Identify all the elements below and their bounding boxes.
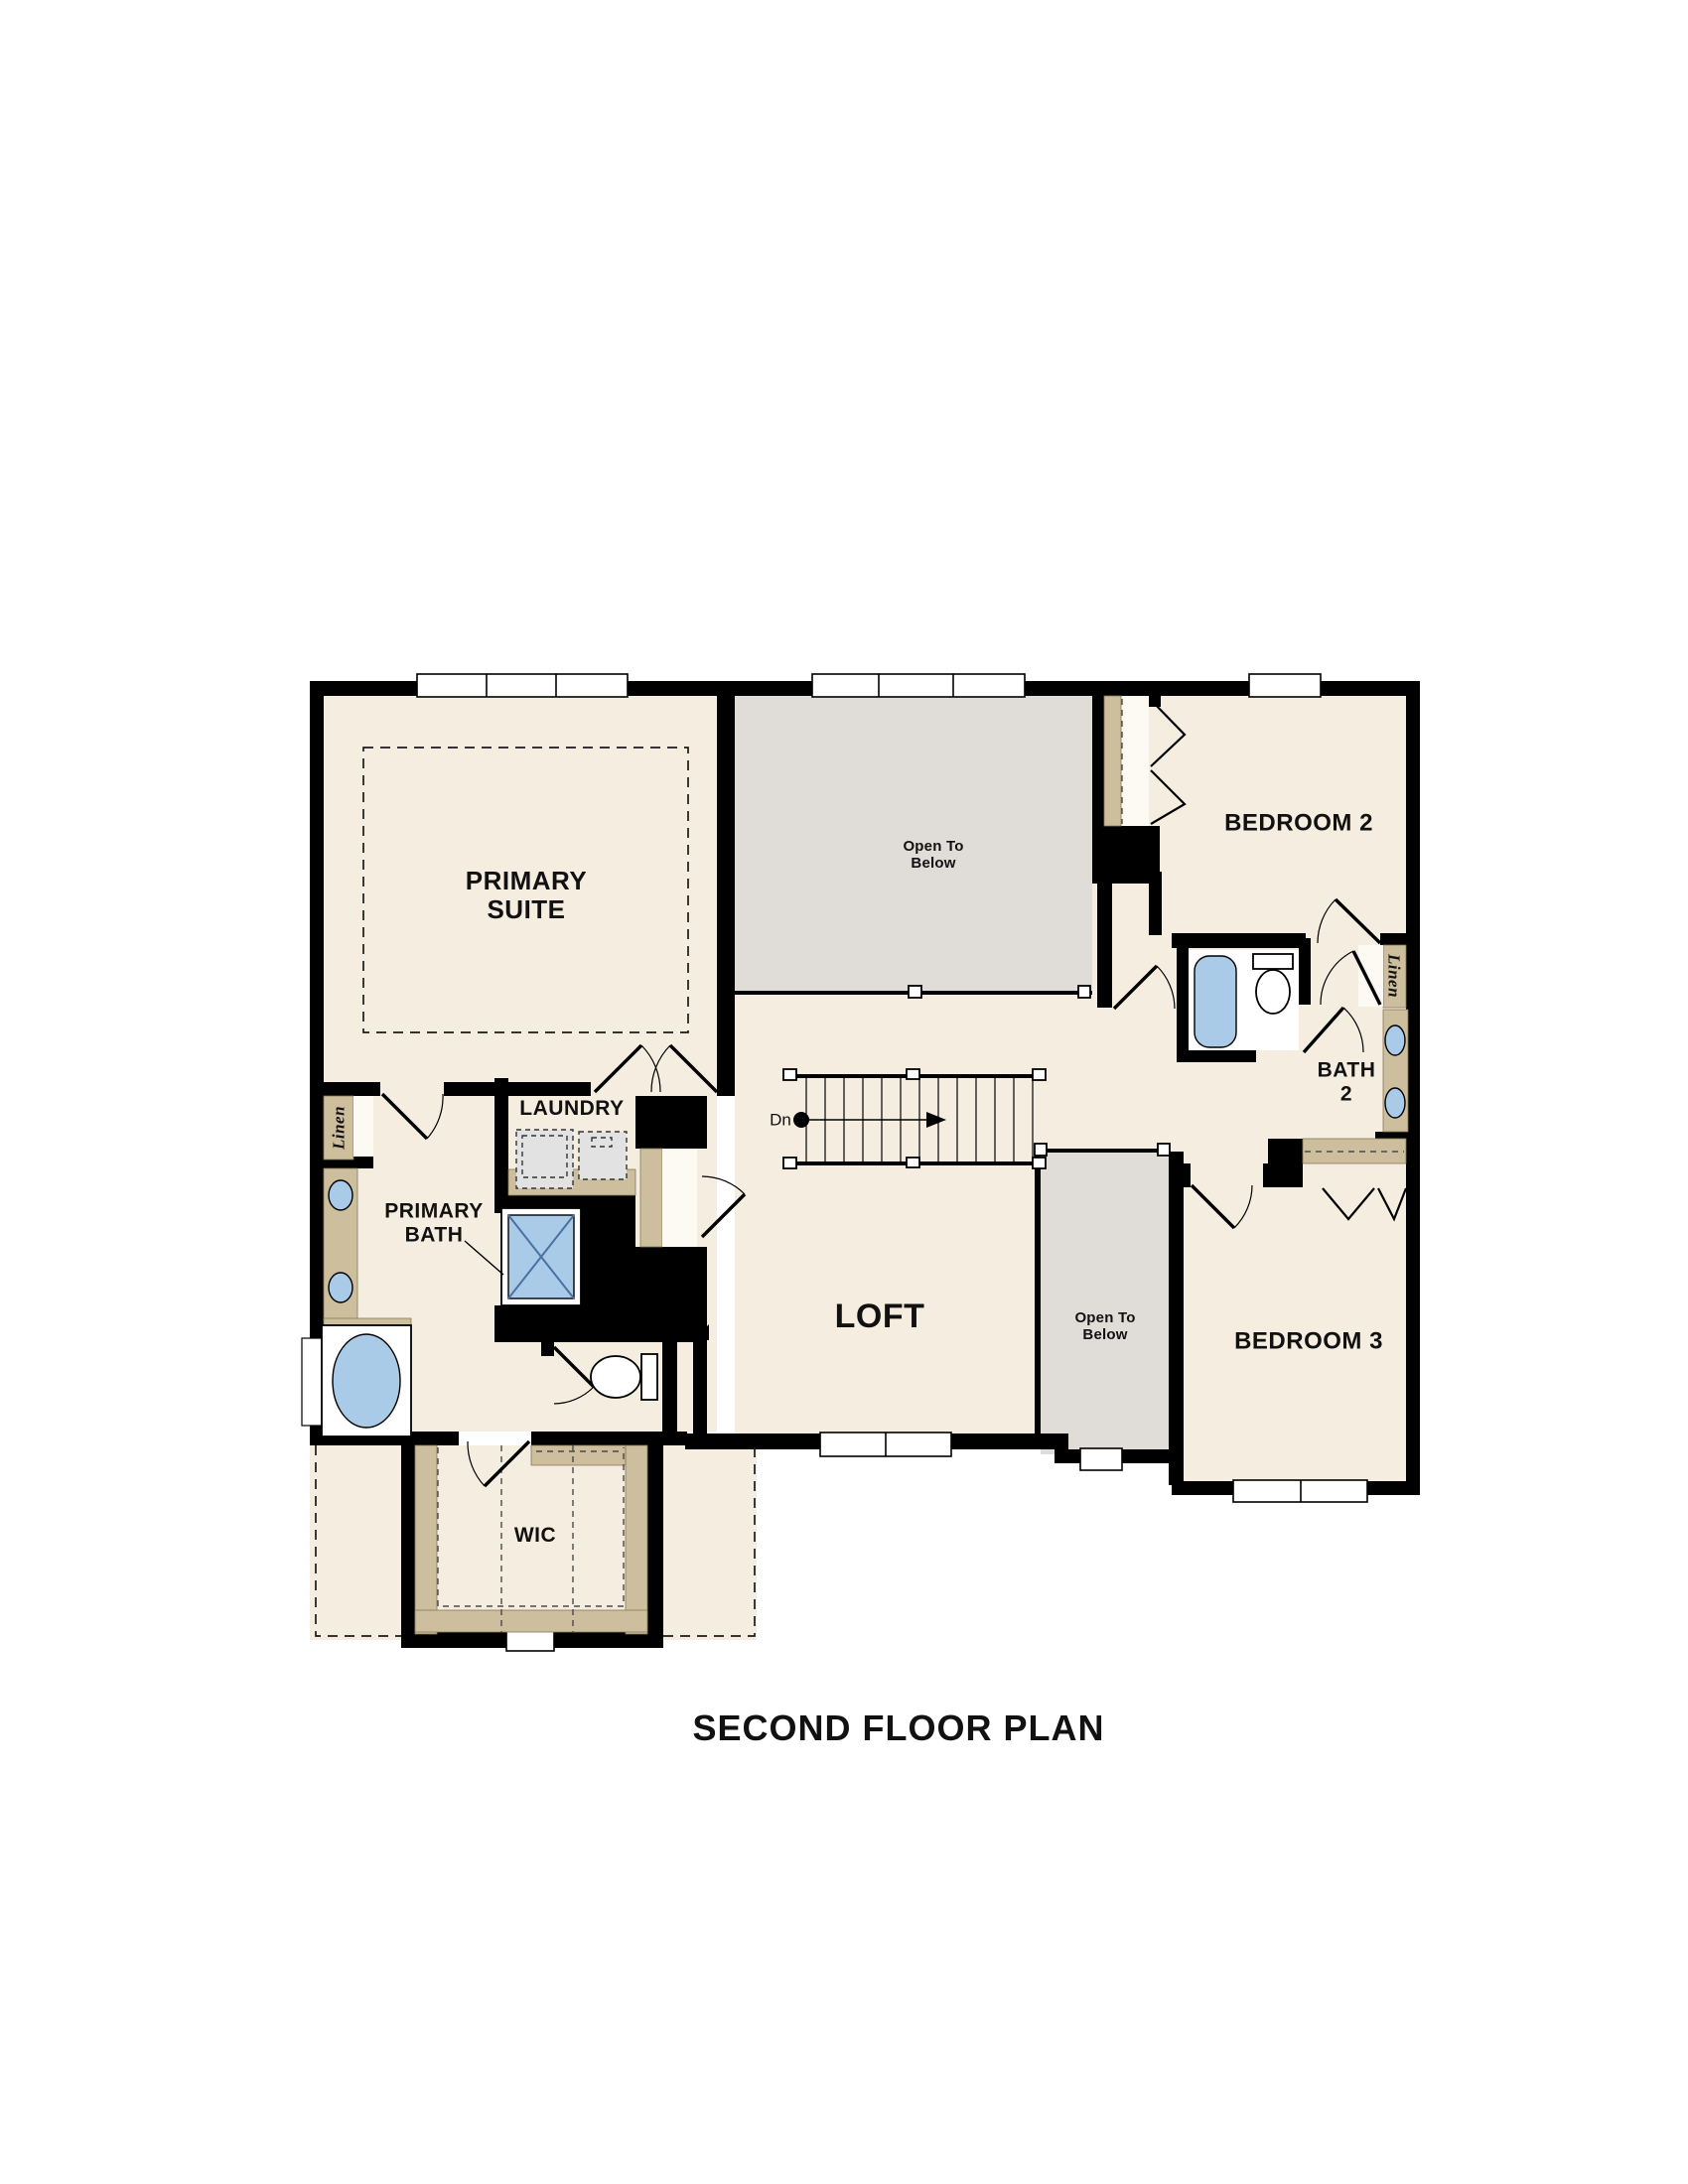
window-bedroom-2 [1249, 674, 1321, 697]
window-open-below-lower [1080, 1448, 1122, 1470]
label-primary-suite: PRIMARY SUITE [437, 867, 616, 924]
open-to-below-lower [1041, 1152, 1169, 1454]
bedroom2-closet-shelf [1104, 696, 1121, 826]
label-loft: LOFT [780, 1297, 979, 1335]
floor-plan-drawing [0, 0, 1688, 2184]
bath2-fixtures [1189, 950, 1299, 1050]
laundry-appliances [516, 1130, 627, 1188]
primary-shower [501, 1208, 581, 1305]
label-open-to-below-upper: Open To Below [903, 839, 964, 873]
window-open-below [812, 674, 1025, 697]
label-open-to-below-lower: Open To Below [1074, 1310, 1136, 1344]
label-bedroom-3: BEDROOM 3 [1190, 1329, 1428, 1356]
window-loft [820, 1433, 951, 1456]
floor-plan-page: PRIMARY SUITE Open To Below BEDROOM 2 BA… [0, 0, 1688, 2184]
window-bedroom-3 [1233, 1480, 1367, 1502]
label-linen-left: Linen [329, 1106, 348, 1150]
label-stairs-dn: Dn [761, 1110, 800, 1129]
window-wic [506, 1631, 554, 1651]
water-closet-toilet [591, 1354, 657, 1400]
label-wic: WIC [486, 1524, 585, 1548]
label-bath-2: BATH 2 [1315, 1058, 1378, 1105]
plan-title: SECOND FLOOR PLAN [692, 1707, 1104, 1749]
window-primary-suite [417, 674, 628, 697]
label-bedroom-2: BEDROOM 2 [1185, 811, 1413, 838]
hall-closet-shelf [640, 1149, 662, 1247]
label-primary-bath: PRIMARY BATH [369, 1199, 498, 1246]
label-linen-right: Linen [1384, 954, 1403, 998]
primary-tub [322, 1325, 411, 1436]
tub-deck-notch [302, 1338, 324, 1426]
label-laundry: LAUNDRY [473, 1097, 671, 1121]
